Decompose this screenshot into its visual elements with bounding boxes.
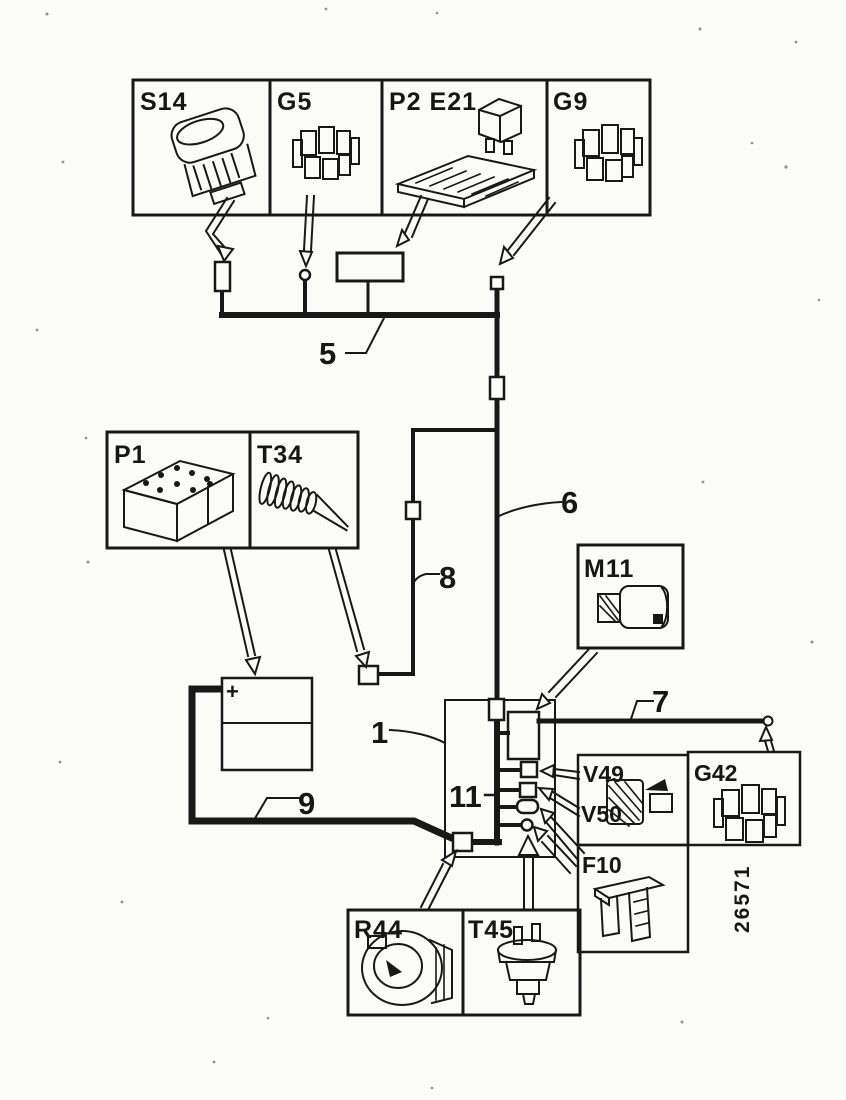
component-label-t34: T34 bbox=[257, 441, 303, 469]
arrow-t45-to-terminal bbox=[519, 836, 538, 908]
part-number: 26571 bbox=[731, 865, 754, 933]
component-box-p1: P1 bbox=[107, 432, 250, 548]
arrow-s14-to-wire bbox=[206, 198, 234, 261]
component-box-f10: F10 bbox=[578, 845, 688, 952]
connector bbox=[491, 277, 503, 289]
arrow-g5-to-wire bbox=[300, 196, 314, 266]
component-box-g42: G42 bbox=[688, 752, 800, 845]
leader-line bbox=[390, 730, 445, 743]
connector bbox=[490, 377, 504, 399]
wire-label-5: 5 bbox=[319, 336, 336, 371]
connector bbox=[215, 262, 230, 291]
wire-5 bbox=[222, 280, 497, 316]
rocker-switch-icon bbox=[168, 105, 262, 210]
component-box-r44: R44 bbox=[348, 910, 463, 1015]
wire-label-8: 8 bbox=[439, 560, 456, 595]
component-box-t45: T45 bbox=[463, 910, 580, 1015]
terminal bbox=[520, 783, 536, 797]
wiring-diagram-canvas: S14 G5 P2 E21 bbox=[0, 0, 846, 1100]
arrow-p2e21-to-junction bbox=[397, 196, 428, 246]
connector-block-icon bbox=[575, 125, 642, 181]
leader-line bbox=[631, 701, 653, 719]
leader-line bbox=[412, 574, 439, 586]
component-label-g9: G9 bbox=[553, 88, 588, 116]
arrow-v49-to-terminal bbox=[541, 765, 579, 779]
connector bbox=[453, 833, 472, 851]
wire-label-7: 7 bbox=[652, 684, 669, 719]
component-label-f10: F10 bbox=[582, 852, 622, 878]
arrow-r44-to-connector bbox=[421, 851, 456, 910]
leader-line bbox=[254, 798, 299, 820]
terminal bbox=[521, 762, 537, 777]
battery-block-icon bbox=[124, 461, 233, 541]
wiring-diagram-page: S14 G5 P2 E21 bbox=[0, 0, 846, 1100]
motor-icon bbox=[598, 586, 668, 628]
leader-line bbox=[346, 318, 384, 353]
wire-label-1: 1 bbox=[371, 715, 388, 750]
connector bbox=[300, 270, 310, 280]
component-label-r44: R44 bbox=[354, 916, 403, 944]
wire-label-9-group: 9 bbox=[254, 786, 315, 821]
battery-plus-sign: + bbox=[226, 679, 239, 704]
component-label-g42: G42 bbox=[694, 760, 737, 786]
wire-label-11-group: 11 bbox=[449, 779, 497, 814]
connector bbox=[406, 502, 420, 519]
component-label-t45: T45 bbox=[468, 916, 514, 944]
component-box-m11: M11 bbox=[578, 545, 683, 648]
arrow-t34-to-connector bbox=[329, 550, 369, 667]
wire-label-5-group: 5 bbox=[319, 318, 384, 371]
cable-loom-icon bbox=[256, 472, 356, 531]
arrow-m11-to-unit1 bbox=[537, 648, 597, 709]
wire-label-9: 9 bbox=[298, 786, 315, 821]
component-label-p1: P1 bbox=[114, 441, 147, 469]
component-box-t34: T34 bbox=[250, 432, 358, 548]
relay-icon bbox=[479, 99, 521, 154]
component-box-s14: S14 bbox=[133, 80, 270, 215]
terminal bbox=[517, 800, 538, 813]
connector bbox=[489, 699, 504, 720]
wire-label-11: 11 bbox=[449, 779, 482, 814]
terminal bbox=[522, 820, 533, 831]
component-box-v49-v50: V49 V50 bbox=[578, 755, 688, 845]
connector-block-icon bbox=[714, 785, 785, 842]
fuse-panel-icon bbox=[398, 156, 534, 207]
wire-8 bbox=[379, 430, 495, 674]
component-label-p2-e21: P2 E21 bbox=[389, 88, 477, 116]
component-label-m11: M11 bbox=[584, 555, 634, 583]
wire-label-6-group: 6 bbox=[499, 485, 578, 520]
wire-label-8-group: 8 bbox=[412, 560, 456, 595]
battery: + bbox=[222, 678, 312, 770]
junction-box bbox=[337, 253, 403, 281]
connector-block-icon bbox=[293, 127, 359, 179]
component-label-v49: V49 bbox=[583, 761, 624, 787]
arrow-p1-to-battery bbox=[224, 550, 260, 674]
wire-label-7-group: 7 bbox=[631, 684, 669, 719]
blade-fuse-icon bbox=[595, 877, 663, 941]
arrow-g42-to-wire7 bbox=[760, 727, 774, 751]
leader-line bbox=[499, 502, 561, 516]
wire-label-6: 6 bbox=[561, 485, 578, 520]
component-box-g9: G9 bbox=[547, 80, 650, 215]
component-box-p2-e21: P2 E21 bbox=[382, 80, 547, 215]
component-label-g5: G5 bbox=[277, 88, 312, 116]
wire-label-1-group: 1 bbox=[371, 715, 445, 750]
component-label-s14: S14 bbox=[140, 88, 187, 116]
component-box-g5: G5 bbox=[270, 80, 382, 215]
wire-7-end-terminal bbox=[764, 717, 773, 726]
connector bbox=[359, 666, 378, 684]
relay-socket bbox=[508, 712, 539, 759]
